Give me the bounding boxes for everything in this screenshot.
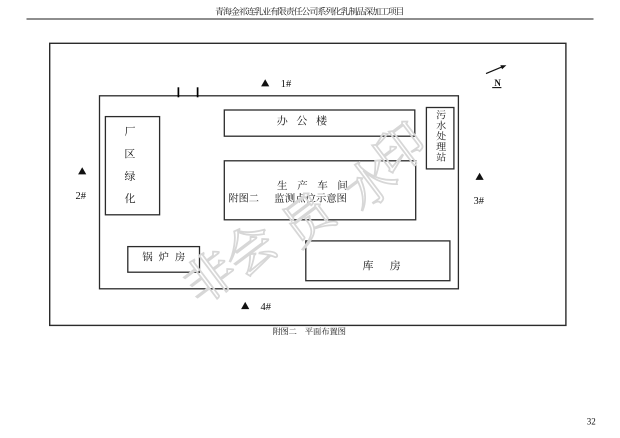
- svg-text:4#: 4#: [261, 302, 272, 313]
- svg-text:N: N: [494, 78, 501, 88]
- svg-text:3#: 3#: [474, 196, 485, 207]
- svg-text:1#: 1#: [281, 79, 292, 90]
- svg-text:32: 32: [587, 417, 596, 427]
- svg-text:2#: 2#: [76, 191, 87, 202]
